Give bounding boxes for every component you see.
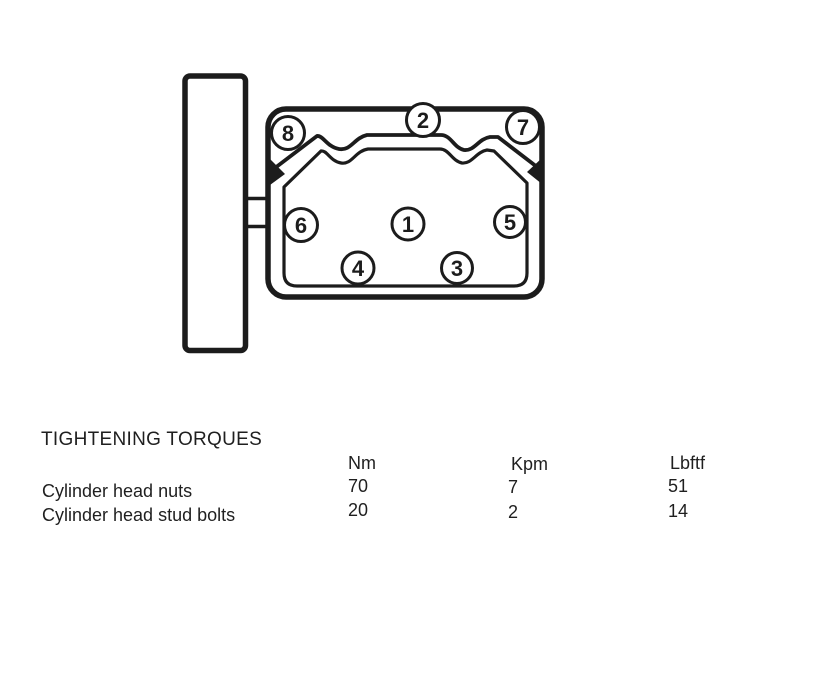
bolt-number: 7: [517, 115, 529, 140]
bolt-number: 8: [282, 121, 294, 146]
row-value-nm: 70: [348, 477, 368, 495]
column-header-lbftf: Lbftf: [670, 454, 705, 472]
bolt-position-2: 2: [407, 104, 440, 137]
column-header-kpm: Kpm: [511, 455, 548, 473]
bolt-position-5: 5: [495, 207, 526, 238]
row-value-lbftf: 14: [668, 502, 688, 520]
column-header-nm: Nm: [348, 454, 376, 472]
row-value-kpm: 7: [508, 478, 518, 496]
bolt-number: 4: [352, 256, 365, 281]
bolt-position-3: 3: [442, 253, 473, 284]
row-value-lbftf: 51: [668, 477, 688, 495]
manual-page: 12345678 TIGHTENING TORQUES Nm Kpm Lbftf…: [0, 0, 816, 679]
row-label: Cylinder head stud bolts: [42, 506, 235, 524]
section-title: TIGHTENING TORQUES: [41, 430, 262, 449]
bolt-position-4: 4: [342, 252, 374, 284]
bolt-position-1: 1: [392, 208, 424, 240]
bolt-number: 2: [417, 108, 429, 133]
row-value-nm: 20: [348, 501, 368, 519]
bolt-number: 3: [451, 256, 463, 281]
row-value-kpm: 2: [508, 503, 518, 521]
bolt-position-6: 6: [285, 209, 318, 242]
bolt-number: 5: [504, 210, 516, 235]
row-label: Cylinder head nuts: [42, 482, 192, 500]
side-housing-outline: [185, 76, 246, 351]
bolt-number: 6: [295, 213, 307, 238]
bolt-number: 1: [402, 212, 414, 237]
tightening-sequence-diagram: 12345678: [0, 0, 816, 420]
bolt-position-8: 8: [272, 117, 305, 150]
bolt-position-7: 7: [507, 111, 540, 144]
